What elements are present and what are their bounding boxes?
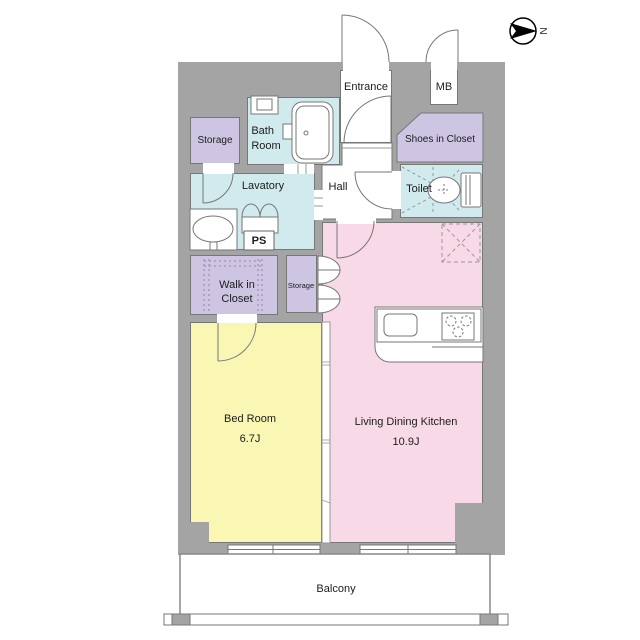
floor-plan-canvas: Storage Bath Room Entrance MB Shoes in C… [0,0,640,640]
plan-linework [0,0,640,640]
ldk-door-icon [337,221,374,258]
bath-window-icon [251,96,278,114]
fridge-dashed-box [442,224,480,262]
bifold-doors-icon [318,256,340,313]
bathtub-icon [283,102,333,163]
wic-hanger-dashes [204,259,262,311]
bedroom-door-icon [218,323,256,361]
pillar-bottom-right [455,503,483,543]
balcony-rail [164,614,508,625]
compass-icon [510,18,537,44]
toilet-icon [428,173,481,207]
vanity-sink-icon [190,209,237,250]
ldk-window [360,545,456,554]
kitchen-counter-icon [375,307,483,362]
bedroom-window [228,545,320,554]
washer-pan-icon [242,204,278,233]
sliding-partition [322,322,330,543]
entrance-exterior-door-icon [342,15,389,62]
pillar-bottom-left [190,522,209,543]
storage-door-icon [203,173,233,203]
ps-box [244,231,274,250]
balcony-area [180,554,490,615]
entrance-inner-door-icon [344,96,391,143]
mb-door-icon [426,30,458,62]
room-shoes-shape [397,113,483,162]
